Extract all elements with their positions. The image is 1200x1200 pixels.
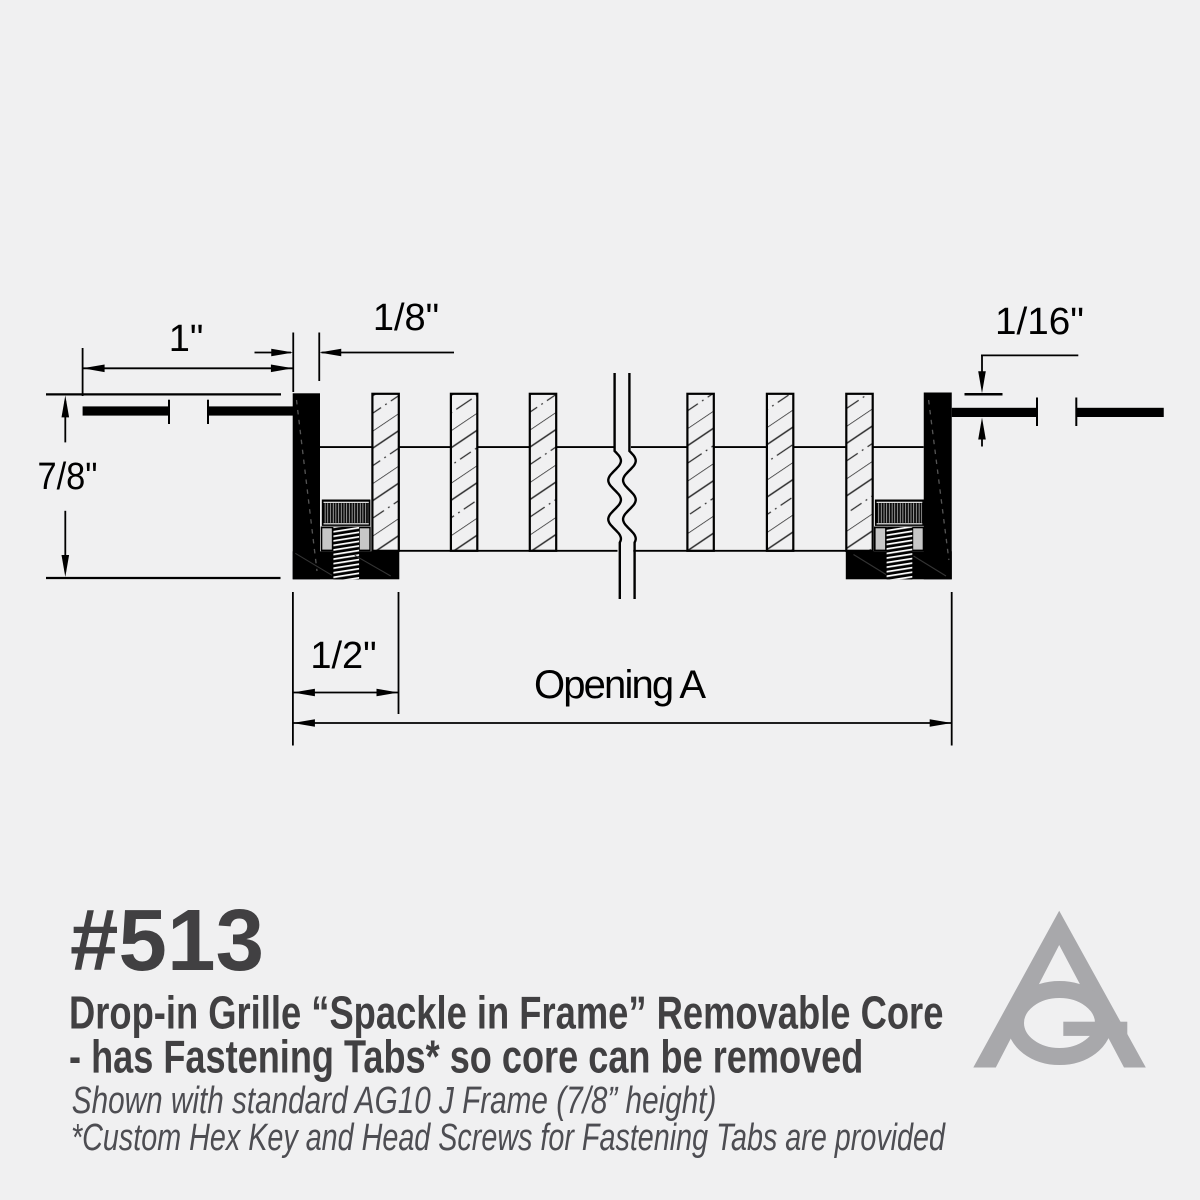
- svg-text:7/8": 7/8": [38, 456, 98, 498]
- svg-text:1/2": 1/2": [310, 635, 376, 677]
- svg-text:- has Fastening Tabs* so core: - has Fastening Tabs* so core can be rem…: [69, 1030, 863, 1082]
- svg-text:1/8": 1/8": [373, 297, 439, 339]
- svg-text:#513: #513: [70, 892, 264, 989]
- svg-text:1": 1": [169, 318, 204, 360]
- svg-text:Shown with standard AG10 J Fra: Shown with standard AG10 J Frame (7/8” h…: [72, 1080, 717, 1122]
- svg-text:Opening A: Opening A: [534, 663, 706, 707]
- svg-text:*Custom Hex Key and Head Screw: *Custom Hex Key and Head Screws for Fast…: [71, 1117, 946, 1159]
- svg-text:1/16": 1/16": [995, 301, 1084, 343]
